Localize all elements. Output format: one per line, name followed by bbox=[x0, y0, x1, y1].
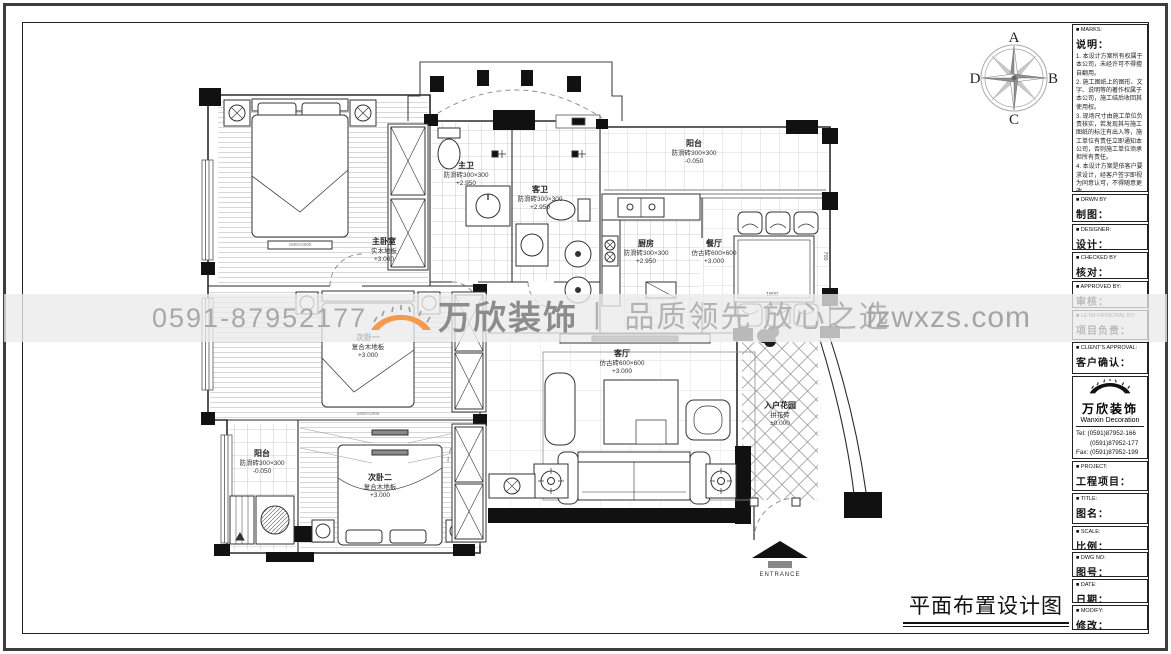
titleblock-marks: ■ MARKS: 说明： 1. 本设计方案所有权属于本公司，未经许可不得擅自翻用… bbox=[1072, 24, 1148, 192]
marks-zh: 说明： bbox=[1076, 36, 1144, 51]
dim-right-wall: 700 bbox=[822, 251, 828, 260]
compass-label-left: D bbox=[970, 71, 981, 87]
titleblock-date: ■ DATE: 日期： bbox=[1072, 579, 1148, 604]
dim-dining-table: 1800 bbox=[766, 292, 778, 298]
dim-bed-second: 1800×2000 bbox=[357, 411, 380, 416]
svg-text:阳台: 阳台 bbox=[686, 138, 702, 148]
svg-text:主卧室: 主卧室 bbox=[372, 236, 396, 246]
checked-by-zh: 核对： bbox=[1076, 264, 1144, 279]
svg-text:防滑砖300×300: 防滑砖300×300 bbox=[518, 194, 563, 203]
svg-text:仿古砖600×600: 仿古砖600×600 bbox=[692, 248, 737, 257]
svg-text:+3.000: +3.000 bbox=[370, 492, 390, 499]
hatch-balcony-top bbox=[602, 129, 828, 189]
svg-text:餐厅: 餐厅 bbox=[705, 238, 722, 248]
designer-en: ■ DESIGNER: bbox=[1076, 227, 1144, 233]
svg-text:+3.000: +3.000 bbox=[374, 256, 394, 263]
svg-text:次卧二: 次卧二 bbox=[368, 472, 392, 482]
entrance-label: ENTRANCE bbox=[759, 572, 800, 578]
titleblock-client-approval: ■ CLIENT'S APPROVAL: 客户确认： bbox=[1072, 342, 1148, 374]
note-3: 3. 现场尺寸由施工单位负责核实，若发现其与施工图纸的标注有出入等，施工单位有责… bbox=[1076, 113, 1144, 163]
company-roof-logo-icon bbox=[1088, 379, 1132, 394]
titleblock-dwg-no: ■ DWG NO: 图号： bbox=[1072, 552, 1148, 577]
company-fax: Fax: (0591)87952-199 bbox=[1076, 448, 1144, 457]
svg-text:防滑砖300×300: 防滑砖300×300 bbox=[672, 148, 717, 157]
svg-text:+3.000: +3.000 bbox=[704, 258, 724, 265]
svg-text:防滑砖300×300: 防滑砖300×300 bbox=[240, 458, 285, 467]
titleblock-title: ■ TITLE: 图名： bbox=[1072, 493, 1148, 523]
titleblock-project: ■ PROJECT: 工程项目： bbox=[1072, 461, 1148, 491]
compass-label-top: A bbox=[1009, 30, 1020, 46]
checked-by-en: ■ CHECKED BY bbox=[1076, 255, 1144, 261]
svg-text:次卧一: 次卧一 bbox=[356, 332, 380, 342]
scale-en: ■ SCALE: bbox=[1076, 529, 1144, 535]
drawing-sheet: ENTRANCE 主卧室 实木地板 +3.000 次卧一 复合木地板 +3.00… bbox=[0, 0, 1171, 654]
company-name: 万欣装饰 bbox=[1076, 400, 1144, 417]
titleblock-designer: ■ DESIGNER: 设计： bbox=[1072, 224, 1148, 251]
company-tel2: (0591)87952-177 bbox=[1076, 439, 1144, 448]
hatch-kitchen bbox=[620, 218, 700, 330]
svg-text:防滑砖300×300: 防滑砖300×300 bbox=[624, 248, 669, 257]
compass-rose: A B C D bbox=[970, 30, 1058, 128]
bedroom3-wardrobe bbox=[452, 424, 486, 542]
svg-text:+3.000: +3.000 bbox=[358, 352, 378, 359]
titleblock-approved-by: ■ APPROVED BY: 审核： bbox=[1072, 281, 1148, 308]
compass-label-right: B bbox=[1048, 71, 1058, 87]
titleblock-company: 万欣装饰 Wanxin Decoration Tel: (0591)87952-… bbox=[1072, 376, 1148, 458]
marks-notes: 1. 本设计方案所有权属于本公司，未经许可不得擅自翻用。 2. 施工图纸上的图形… bbox=[1076, 53, 1144, 192]
client-approval-en: ■ CLIENT'S APPROVAL: bbox=[1076, 345, 1144, 351]
floor-plan: ENTRANCE 主卧室 实木地板 +3.000 次卧一 复合木地板 +3.00… bbox=[0, 0, 1171, 654]
note-1: 1. 本设计方案所有权属于本公司，未经许可不得擅自翻用。 bbox=[1076, 53, 1144, 78]
bedroom2-wardrobe bbox=[452, 292, 486, 412]
company-tel1: Tel: (0591)87952-166 bbox=[1076, 429, 1144, 438]
svg-text:仿古砖600×600: 仿古砖600×600 bbox=[600, 358, 645, 367]
laundry-area bbox=[230, 496, 294, 544]
titleblock-modify: ■ MODIFY: 修改： bbox=[1072, 605, 1148, 630]
modify-en: ■ MODIFY: bbox=[1076, 608, 1144, 614]
title-zh: 图名： bbox=[1076, 505, 1144, 520]
svg-text:客卫: 客卫 bbox=[531, 184, 548, 194]
marks-en: ■ MARKS: bbox=[1076, 27, 1144, 33]
project-en: ■ PROJECT: bbox=[1076, 464, 1144, 470]
scale-zh: 比例： bbox=[1076, 538, 1144, 551]
company-contacts: Tel: (0591)87952-166 (0591)87952-177 Fax… bbox=[1076, 426, 1144, 458]
svg-text:入户花园: 入户花园 bbox=[763, 400, 796, 410]
label-master-bedroom: 主卧室 实木地板 +3.000 bbox=[371, 236, 398, 263]
svg-text:实木地板: 实木地板 bbox=[371, 246, 398, 255]
titleblock-principal: ■ LETM PRINCIPAL BY: 项目负责： bbox=[1072, 310, 1148, 340]
svg-text:-0.050: -0.050 bbox=[253, 468, 272, 475]
date-zh: 日期： bbox=[1076, 591, 1144, 604]
dwg-no-en: ■ DWG NO: bbox=[1076, 555, 1144, 561]
titleblock-drawn-by: ■ DRWN BY 制图： bbox=[1072, 194, 1148, 222]
svg-text:+2.950: +2.950 bbox=[636, 258, 656, 265]
svg-text:±0.000: ±0.000 bbox=[770, 420, 790, 427]
designer-zh: 设计： bbox=[1076, 236, 1144, 251]
svg-text:复合木地板: 复合木地板 bbox=[352, 342, 385, 351]
principal-en: ■ LETM PRINCIPAL BY: bbox=[1076, 313, 1144, 319]
approved-by-zh: 审核： bbox=[1076, 293, 1144, 308]
modify-zh: 修改： bbox=[1076, 617, 1144, 630]
svg-text:+2.950: +2.950 bbox=[530, 204, 550, 211]
note-2: 2. 施工图纸上的图形、文字、说明等的著作权属于本公司，施工结后收回其使用权。 bbox=[1076, 79, 1144, 112]
title-en: ■ TITLE: bbox=[1076, 496, 1144, 502]
svg-text:-0.050: -0.050 bbox=[685, 158, 704, 165]
titleblock-checked-by: ■ CHECKED BY 核对： bbox=[1072, 252, 1148, 279]
svg-text:复合木地板: 复合木地板 bbox=[364, 482, 397, 491]
title-block: ■ MARKS: 说明： 1. 本设计方案所有权属于本公司，未经许可不得擅自翻用… bbox=[1072, 24, 1148, 630]
approved-by-en: ■ APPROVED BY: bbox=[1076, 284, 1144, 290]
svg-text:阳台: 阳台 bbox=[254, 448, 270, 458]
drawn-by-en: ■ DRWN BY bbox=[1076, 197, 1144, 203]
dining-set bbox=[734, 212, 818, 326]
svg-text:客厅: 客厅 bbox=[613, 348, 630, 358]
entrance-arrow: ENTRANCE bbox=[752, 541, 808, 578]
svg-text:+3.000: +3.000 bbox=[612, 368, 632, 375]
titleblock-scale: ■ SCALE: 比例： bbox=[1072, 526, 1148, 551]
project-zh: 工程项目： bbox=[1076, 473, 1144, 488]
svg-text:主卫: 主卫 bbox=[458, 160, 474, 170]
date-en: ■ DATE: bbox=[1076, 582, 1144, 588]
svg-text:+2.950: +2.950 bbox=[456, 180, 476, 187]
dwg-no-zh: 图号： bbox=[1076, 564, 1144, 577]
svg-text:拼花砖: 拼花砖 bbox=[770, 410, 790, 419]
svg-text:厨房: 厨房 bbox=[638, 238, 654, 248]
compass-label-bottom: C bbox=[1009, 112, 1019, 128]
dim-bed-master: 1800×2000 bbox=[289, 242, 312, 247]
svg-text:防滑砖300×300: 防滑砖300×300 bbox=[444, 170, 489, 179]
company-web: Web: WWW.fzwxzs.com bbox=[1076, 457, 1144, 459]
drawn-by-zh: 制图： bbox=[1076, 206, 1144, 221]
principal-zh: 项目负责： bbox=[1076, 322, 1144, 337]
company-name-en: Wanxin Decoration bbox=[1076, 417, 1144, 424]
drawing-title: 平面布置设计图 bbox=[903, 590, 1069, 627]
note-4: 4. 本设计方案是依客户要求设计，经客户签字即视为同意认可，不得随意更改。 bbox=[1076, 163, 1144, 192]
client-approval-zh: 客户确认： bbox=[1076, 354, 1144, 369]
